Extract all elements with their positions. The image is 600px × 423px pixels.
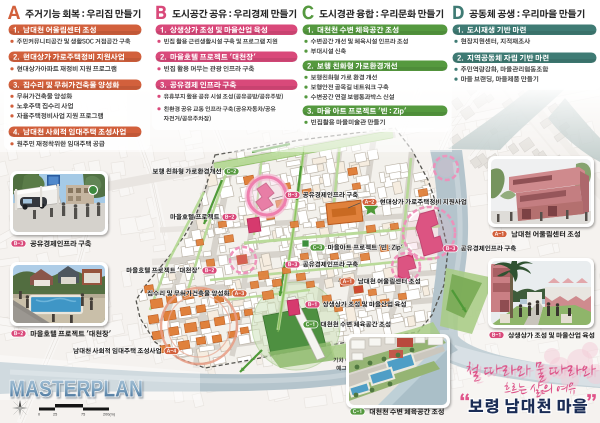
svg-text:0: 0	[38, 413, 40, 417]
svg-text:200(m): 200(m)	[103, 413, 116, 417]
svg-text:MASTERPLAN: MASTERPLAN	[9, 376, 143, 402]
svg-text:75: 75	[81, 413, 85, 417]
svg-text:25: 25	[53, 413, 57, 417]
